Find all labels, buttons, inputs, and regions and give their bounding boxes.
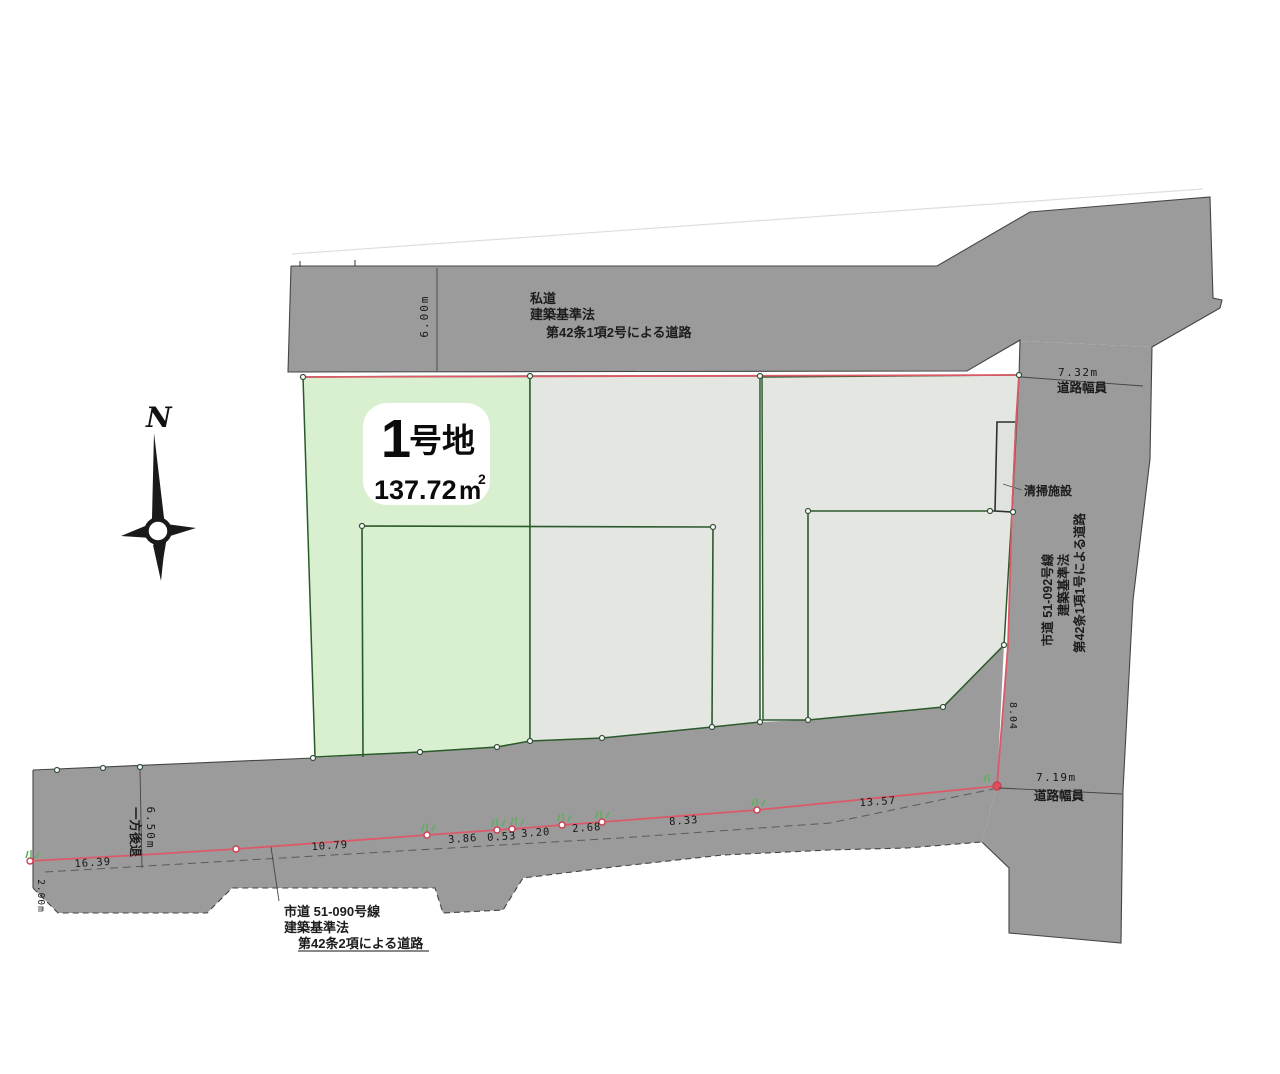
right-road-width-bottom-value: 7.19m <box>1036 771 1077 784</box>
survey-node <box>101 766 106 771</box>
lot-1-suffix: 号地 <box>409 422 475 459</box>
lot-1-number: 1 <box>381 409 411 469</box>
survey-node <box>1011 510 1016 515</box>
segment-dim: 8.33 <box>669 814 699 828</box>
north-label: N <box>145 401 173 434</box>
survey-node <box>758 720 763 725</box>
north-compass: N <box>121 401 196 581</box>
left-edge-dim: 2.00m <box>35 879 46 913</box>
right-road-width-top-value: 7.32m <box>1058 366 1099 379</box>
lot-1-label: 1 号地 137.72 m 2 <box>363 403 490 505</box>
survey-node <box>495 745 500 750</box>
survey-node <box>311 756 316 761</box>
compass-ring <box>147 520 170 543</box>
survey-node <box>138 765 143 770</box>
survey-node <box>528 374 533 379</box>
red-marker <box>27 858 33 864</box>
red-marker <box>233 846 239 852</box>
survey-node <box>806 718 811 723</box>
survey-node <box>418 750 423 755</box>
survey-node <box>1002 643 1007 648</box>
survey-node <box>528 739 533 744</box>
red-marker-junction <box>993 782 1001 790</box>
bottom-road-law: 建築基準法 <box>284 920 349 935</box>
plot-2-shape <box>530 376 760 741</box>
survey-node <box>1017 373 1022 378</box>
segment-dim: 2.68 <box>572 821 602 835</box>
cleaning-facility-label: 清掃施設 <box>1024 483 1073 498</box>
right-road-name: 市道 51-092号線 <box>1040 553 1055 646</box>
segment-dim: 10.79 <box>311 839 348 854</box>
right-road-width-bottom-label: 道路幅員 <box>1034 788 1085 803</box>
setback-label: 一方後退 <box>128 807 143 858</box>
survey-node <box>600 736 605 741</box>
plot-3-shape <box>762 375 1019 720</box>
survey-node <box>711 525 716 530</box>
survey-node <box>710 725 715 730</box>
top-road-law: 建築基準法 <box>530 307 595 322</box>
segment-dim: 0.53 <box>487 830 517 844</box>
bottom-road-label-block: 市道 51-090号線 建築基準法 第42条2項による道路 <box>279 901 432 952</box>
survey-node <box>941 705 946 710</box>
segment-dim: 16.39 <box>74 856 111 871</box>
bottom-road-clause: 第42条2項による道路 <box>298 936 424 951</box>
top-road-width-dim: 6.00m <box>418 294 431 337</box>
site-plan-page: 私道 建築基準法 第42条1項2号による道路 6.00m 7.32m 道路幅員 … <box>0 0 1280 1074</box>
right-road-law: 建築基準法 <box>1056 553 1071 616</box>
survey-node <box>301 375 306 380</box>
survey-node <box>758 374 763 379</box>
right-road-edge-dim: 8.04 <box>1007 702 1018 730</box>
survey-node <box>360 524 365 529</box>
segment-dim: 3.20 <box>521 826 551 840</box>
lot-1-area-unit-sup: 2 <box>478 471 486 487</box>
segment-dim: 13.57 <box>859 795 896 810</box>
segment-dim: 3.86 <box>448 832 478 846</box>
bottom-road-name: 市道 51-090号線 <box>284 904 381 919</box>
survey-node <box>55 768 60 773</box>
top-road-clause: 第42条1項2号による道路 <box>546 325 693 340</box>
right-road-width-top-label: 道路幅員 <box>1057 380 1108 395</box>
red-marker <box>559 822 565 828</box>
survey-node <box>988 509 993 514</box>
site-plan-drawing: 私道 建築基準法 第42条1項2号による道路 6.00m 7.32m 道路幅員 … <box>0 0 1280 1074</box>
survey-node <box>806 509 811 514</box>
lot-1-area-value: 137.72 <box>374 475 457 505</box>
setback-value: 6.50m <box>144 806 157 849</box>
top-road-name: 私道 <box>530 291 556 306</box>
red-marker <box>754 807 760 813</box>
compass-needle-south <box>153 543 165 581</box>
red-marker <box>424 832 430 838</box>
right-road-clause: 第42条1項1号による道路 <box>1072 513 1087 653</box>
